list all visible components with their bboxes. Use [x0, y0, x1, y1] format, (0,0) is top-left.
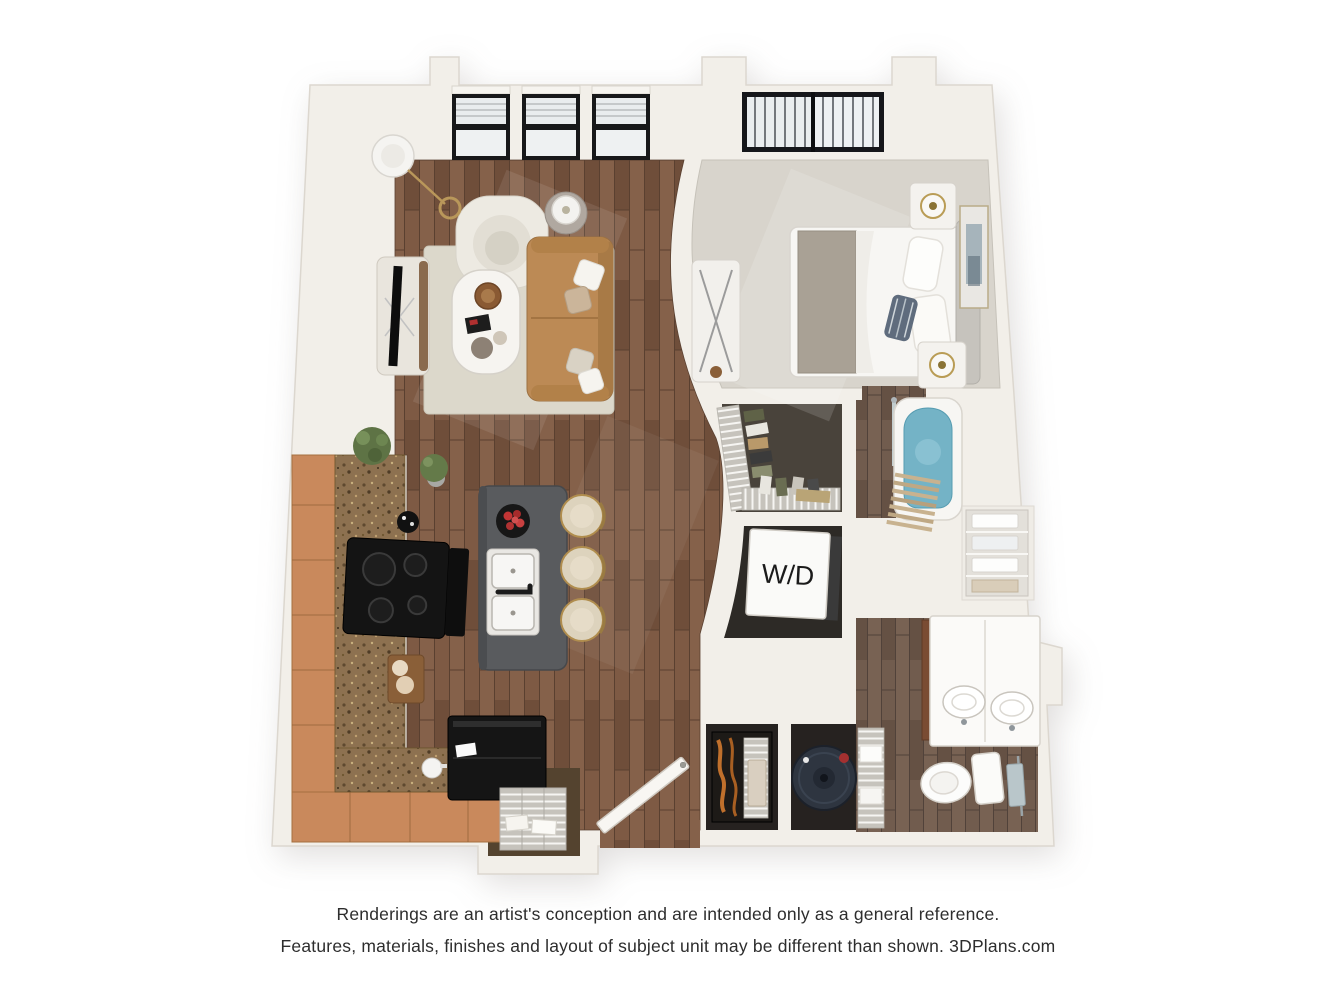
- washer-dryer-label: W/D: [761, 559, 815, 592]
- bedroom-sliding-door: [742, 92, 884, 152]
- floor-plan-render: W/D: [0, 0, 1336, 1002]
- hvac-unit: [712, 732, 772, 822]
- island-sink: [487, 549, 539, 635]
- faucet: [1009, 725, 1015, 731]
- bathroom-tub-floor: [856, 400, 896, 518]
- fruit-bowl: [496, 504, 530, 538]
- disclaimer-line-1: Renderings are an artist's conception an…: [0, 898, 1336, 930]
- sofa: [527, 237, 613, 401]
- bed-blanket: [798, 231, 856, 373]
- storage-box: [505, 815, 528, 831]
- basket: [972, 580, 1018, 592]
- water-heater: [792, 746, 856, 810]
- pantry: [500, 788, 566, 850]
- cooktop: [343, 537, 470, 639]
- vanity-sink: [991, 692, 1033, 724]
- utility-shelving: [858, 728, 884, 828]
- utility-divider-wall: [778, 724, 791, 830]
- living-window-3: [592, 86, 650, 160]
- nightstand: [910, 183, 956, 229]
- tv-console: [377, 257, 429, 375]
- potted-plant: [353, 427, 391, 465]
- towels: [972, 514, 1018, 528]
- living-window-2: [522, 86, 580, 160]
- vanity: [922, 616, 1040, 746]
- laundry-closet: W/D: [746, 529, 842, 621]
- vanity-sink: [943, 686, 985, 718]
- hand-towel: [1007, 763, 1026, 806]
- wall-art: [960, 206, 988, 308]
- linen-shelf: [966, 510, 1028, 596]
- side-table: [545, 192, 587, 234]
- bar-stool: [561, 599, 604, 641]
- storage-box: [532, 819, 557, 835]
- bedroom-dresser: [692, 260, 740, 382]
- kitchen-island: [479, 486, 567, 670]
- cutting-board: [388, 655, 424, 703]
- disclaimer: Renderings are an artist's conception an…: [0, 898, 1336, 962]
- towels: [972, 558, 1018, 572]
- decor-vase: [493, 331, 507, 345]
- floor-plan-page: W/D: [0, 0, 1336, 1002]
- bar-stool: [561, 547, 604, 589]
- coffee-table: [452, 270, 520, 374]
- towels: [972, 536, 1018, 550]
- disclaimer-line-2: Features, materials, finishes and layout…: [0, 930, 1336, 962]
- throw-pillow: [563, 285, 592, 314]
- living-window-bay: [452, 86, 650, 160]
- storage-box: [860, 788, 882, 804]
- kitchen-cabinets-left: [292, 455, 335, 792]
- living-window-1: [452, 86, 510, 160]
- nightstand: [918, 342, 966, 388]
- faucet: [961, 719, 967, 725]
- decor-vase: [471, 337, 493, 359]
- refrigerator: [448, 716, 546, 800]
- bar-stool: [561, 495, 604, 537]
- storage-box: [860, 746, 882, 762]
- cookie-jar: [397, 511, 419, 533]
